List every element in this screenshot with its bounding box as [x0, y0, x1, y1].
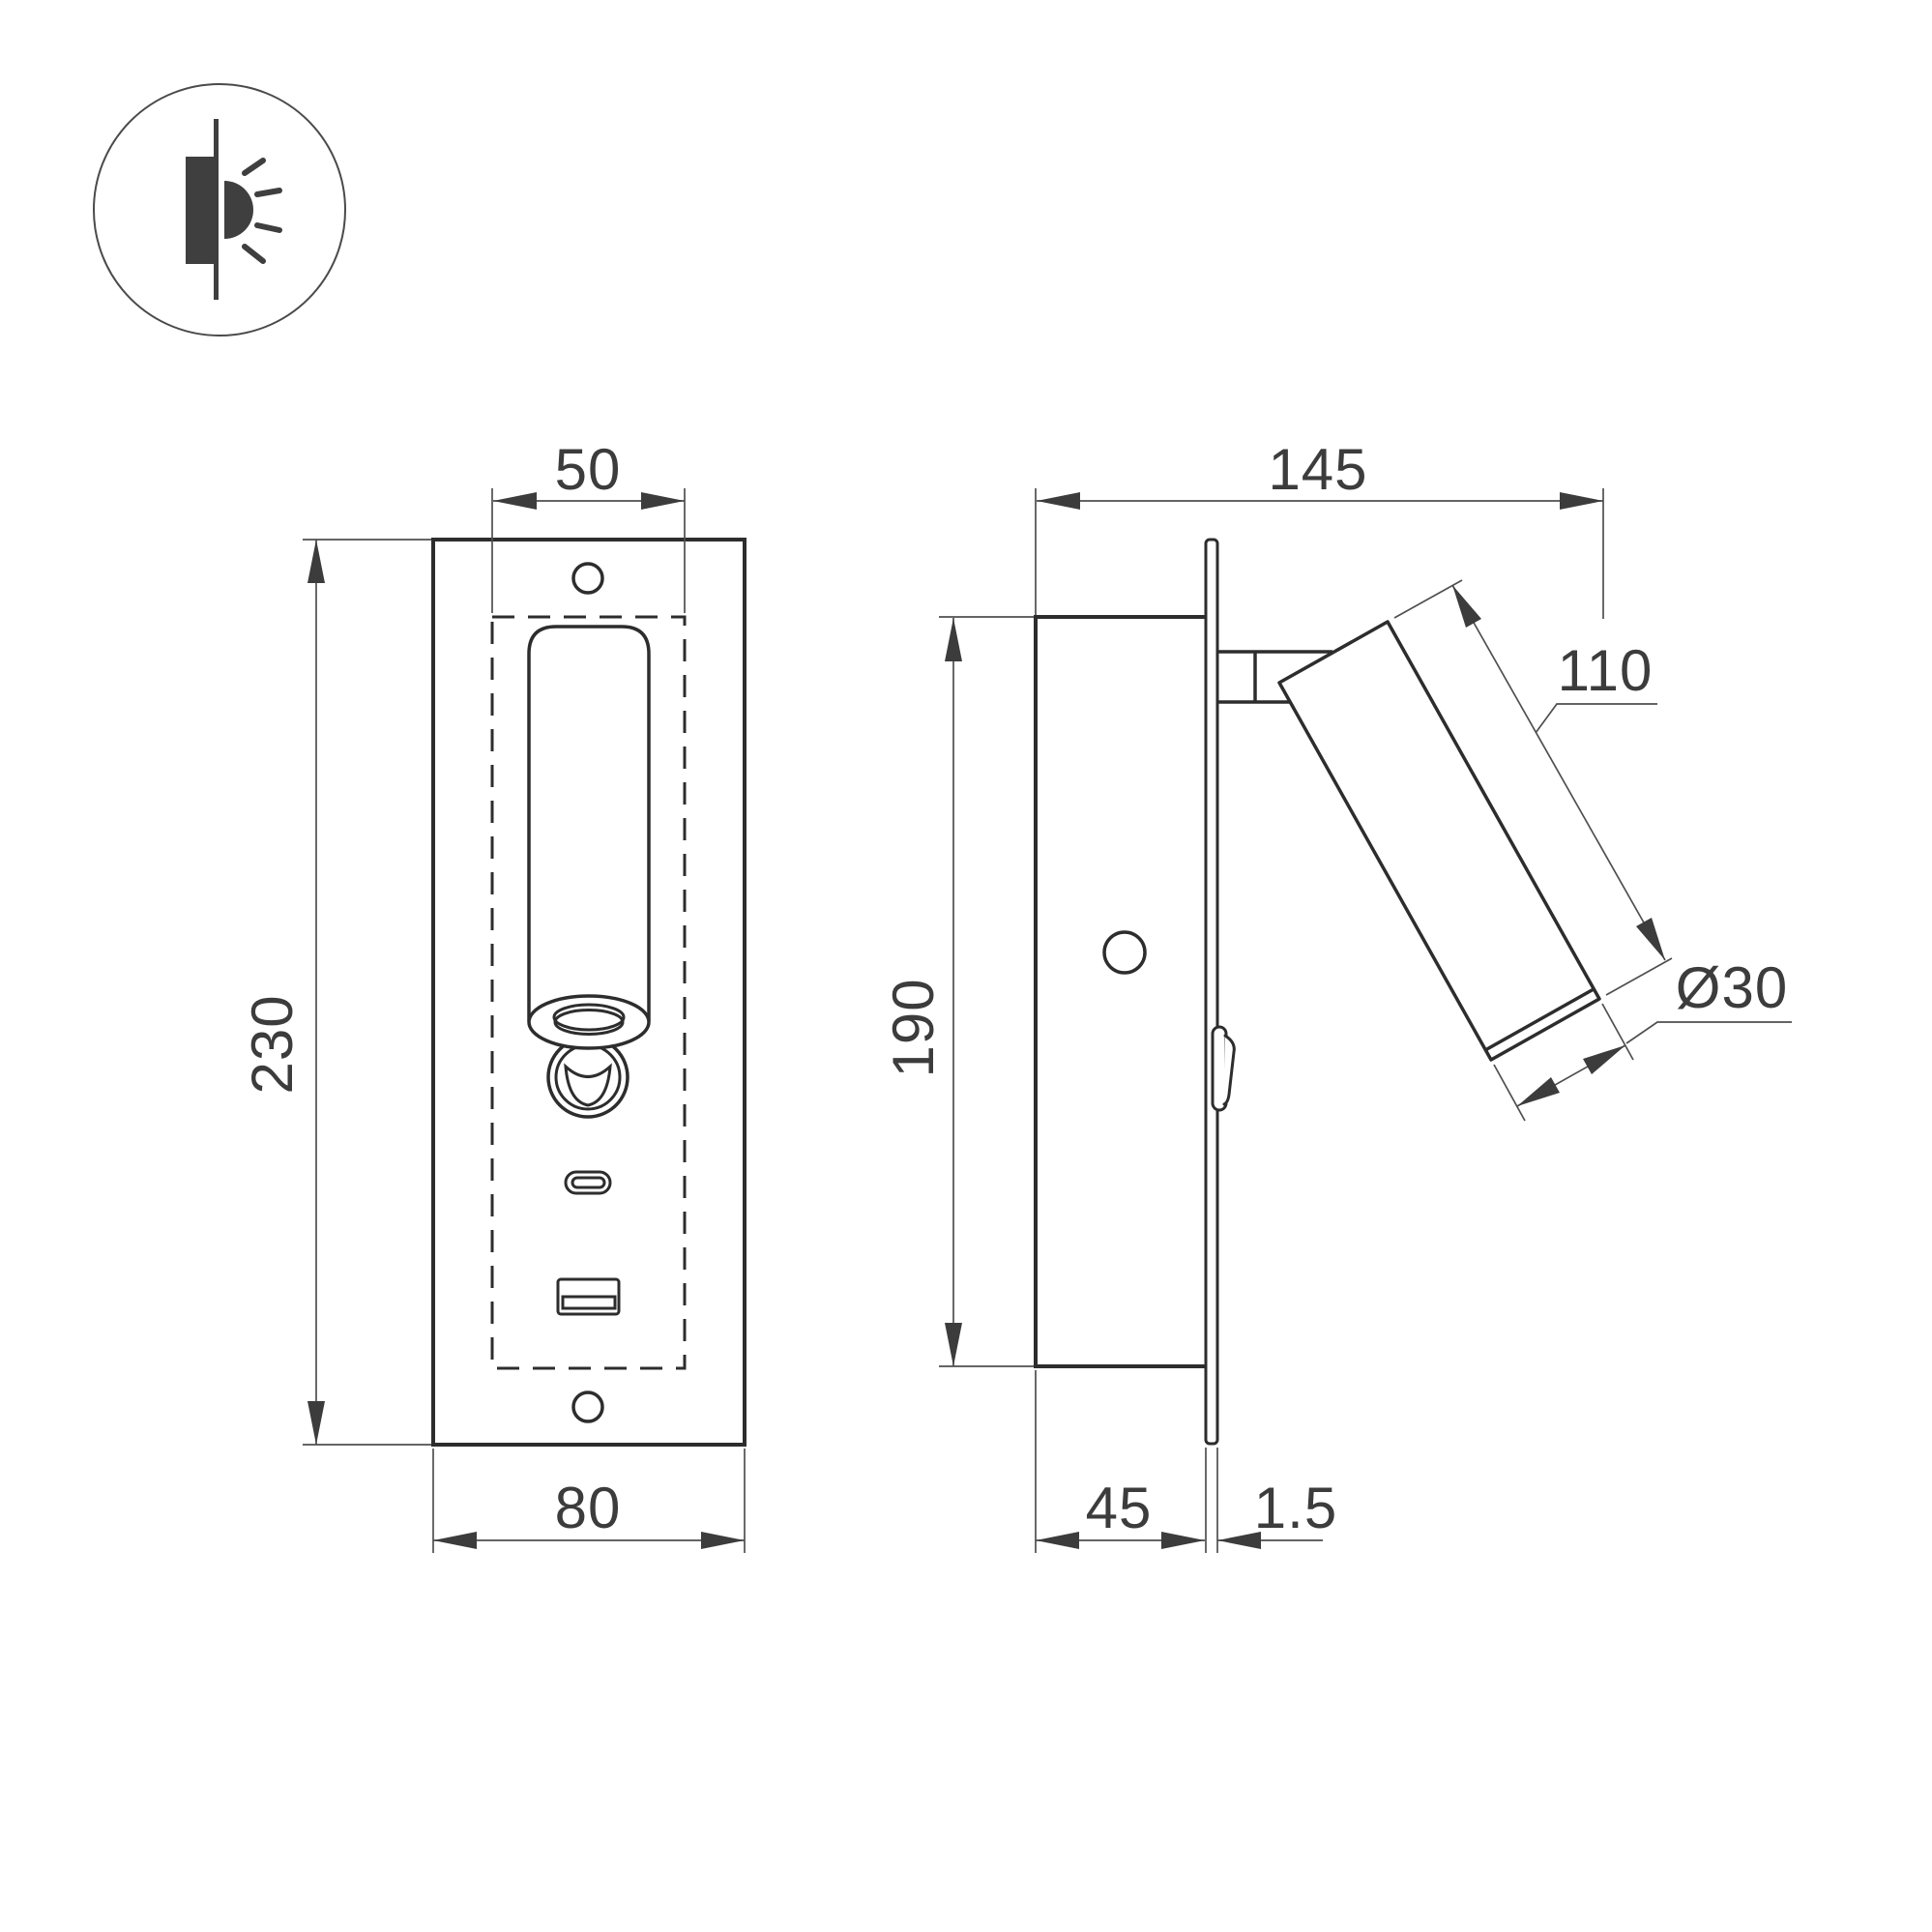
dim-label-lamp-length: 110	[1558, 638, 1654, 703]
dim-label-total-depth: 145	[1268, 437, 1367, 502]
dim-arrow	[1636, 918, 1665, 960]
ext-line	[1394, 580, 1462, 618]
dim-arrow	[701, 1532, 745, 1549]
side-view	[1036, 540, 1599, 1444]
dim-arrow	[1583, 1045, 1625, 1074]
side-lamp-body	[1279, 622, 1599, 1060]
side-box-hole	[1104, 932, 1145, 973]
leader-line-110	[1536, 704, 1657, 733]
drawing-page: 50 230 80 145 190	[0, 0, 1932, 1932]
dimensions-side: 145 190 45 1.5 110 Ø30	[881, 437, 1792, 1553]
technical-drawing-canvas: 50 230 80 145 190	[0, 0, 1932, 1932]
dim-label-recess-height: 190	[881, 978, 946, 1077]
dim-arrow	[307, 540, 325, 583]
leader-line-d30	[1626, 1022, 1792, 1043]
dim-arrow	[945, 1323, 962, 1366]
dim-label-cutout-width: 50	[555, 437, 622, 502]
dim-label-lamp-diameter: Ø30	[1676, 955, 1788, 1020]
dim-label-flange-thickness: 1.5	[1254, 1476, 1337, 1540]
ext-line	[1606, 958, 1672, 995]
icon-recessed-box	[186, 157, 215, 264]
front-view	[433, 540, 745, 1445]
side-flange	[1206, 540, 1217, 1444]
ext-line	[1494, 1065, 1525, 1121]
dim-arrow	[1161, 1532, 1205, 1549]
dim-label-width: 80	[555, 1476, 622, 1540]
recessed-wall-light-icon	[94, 84, 345, 336]
dim-arrow	[1036, 1532, 1079, 1549]
front-screw-hole-bottom	[573, 1392, 602, 1421]
dim-arrow	[1037, 492, 1080, 510]
dim-arrow	[493, 492, 537, 510]
dim-arrow	[1517, 1077, 1560, 1106]
dim-arrow	[433, 1532, 477, 1549]
dim-arrow	[307, 1401, 325, 1445]
dim-label-recess-depth: 45	[1086, 1476, 1153, 1540]
dim-arrow	[945, 618, 962, 661]
dim-arrow	[1560, 492, 1603, 510]
dim-arrow	[1452, 585, 1481, 628]
front-lamp-body	[529, 627, 649, 1021]
side-switch-lever	[1224, 1036, 1234, 1104]
icon-light-ray	[257, 190, 279, 194]
side-switch-base	[1213, 1027, 1226, 1110]
dim-label-height: 230	[240, 994, 305, 1094]
icon-circle-border	[94, 84, 345, 336]
side-housing-box	[1036, 617, 1207, 1366]
front-screw-hole-top	[573, 564, 602, 593]
dim-arrow	[641, 492, 685, 510]
